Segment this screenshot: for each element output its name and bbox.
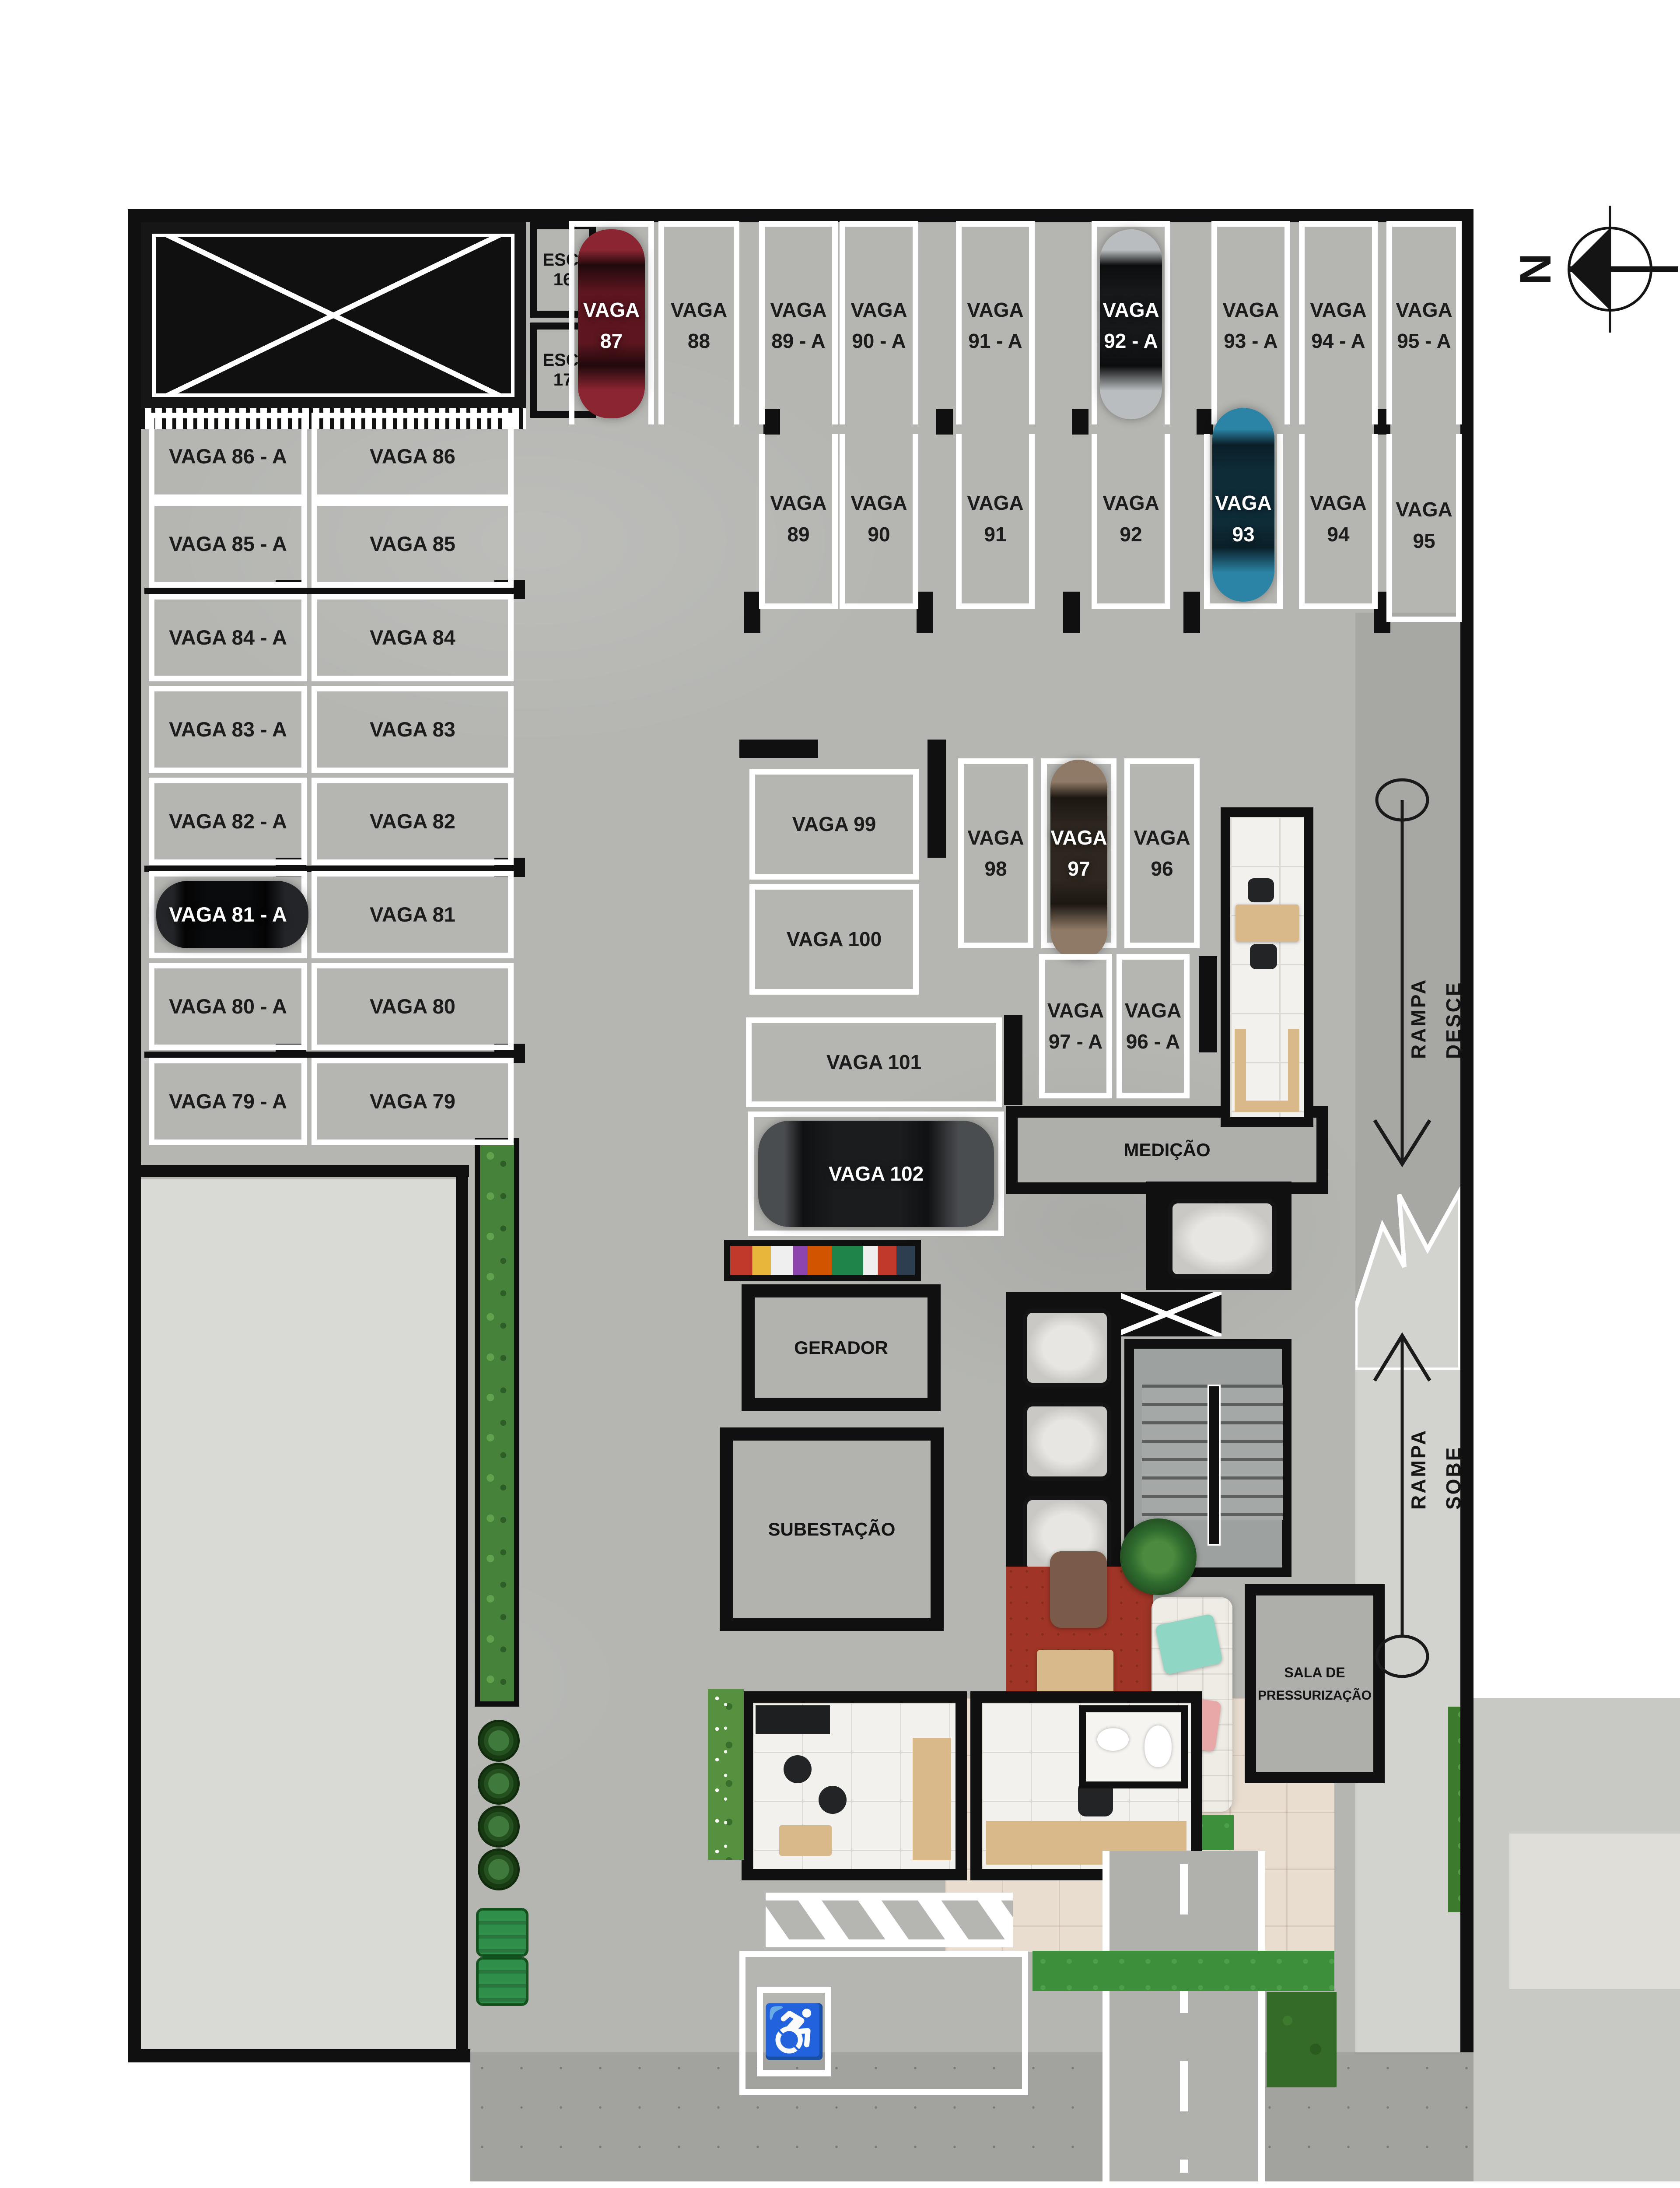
spot-vaga-83: VAGA 83 — [311, 686, 514, 773]
spot-vaga-87: VAGA87 — [569, 221, 654, 424]
spot-vaga-80a: VAGA 80 - A — [149, 963, 307, 1050]
spot-vaga-101: VAGA 101 — [746, 1017, 1002, 1107]
flower-hedge-vertical — [708, 1689, 744, 1860]
medicao-label: MEDIÇÃO — [1123, 1140, 1210, 1161]
chair-icon — [1250, 944, 1277, 969]
outer-yard-left — [141, 1179, 456, 2050]
sink-icon — [1097, 1728, 1129, 1751]
pillar — [936, 409, 953, 435]
elevator-shaft-top — [1146, 1182, 1291, 1290]
spot-vaga-89: VAGA89 — [759, 434, 838, 609]
wall-divider — [144, 1052, 518, 1058]
pillar — [739, 740, 818, 758]
reserved-zone-x — [141, 222, 526, 408]
spot-vaga-100: VAGA 100 — [749, 884, 919, 995]
pillar — [744, 592, 760, 633]
pressurizacao-label: SALA DE — [1284, 1661, 1345, 1684]
spot-vaga-97: VAGA97 — [1041, 758, 1116, 948]
bathroom — [1079, 1705, 1188, 1788]
spot-vaga-91: VAGA91 — [956, 434, 1035, 609]
toilet-icon — [1144, 1725, 1172, 1767]
pillar — [1199, 956, 1217, 1052]
wall-bottom-left — [128, 2049, 470, 2062]
wall-leftblock-bottom — [141, 1165, 469, 1177]
plant-icon — [1120, 1518, 1197, 1595]
spot-vaga-91a: VAGA91 - A — [956, 221, 1035, 424]
cistern-icon — [478, 1720, 520, 1762]
cistern-icon — [478, 1848, 520, 1890]
pillar — [1197, 409, 1213, 435]
accessible-icon: ♿ — [762, 2002, 826, 2062]
elevator-bank-left — [1006, 1292, 1121, 1577]
spot-vaga-88: VAGA88 — [658, 221, 739, 424]
storage-shelf-icon — [724, 1240, 921, 1281]
pillar — [927, 740, 946, 858]
room-pressurizacao: SALA DE PRESSURIZAÇÃO — [1245, 1584, 1385, 1783]
room-office — [742, 1691, 967, 1880]
armchair-icon — [1050, 1551, 1107, 1628]
cistern-icon — [478, 1806, 520, 1848]
room-subestacao: SUBESTAÇÃO — [720, 1427, 944, 1631]
spot-vaga-86a: VAGA 86 - A — [149, 413, 307, 500]
grass-band — [1032, 1951, 1334, 1991]
pillar — [1183, 592, 1200, 633]
lane-divider-dashed — [1180, 1864, 1188, 2173]
driveway — [1102, 1851, 1265, 2181]
ramp-down-label: RAMPA DESCE — [1407, 901, 1465, 1059]
spot-vaga-99: VAGA 99 — [749, 769, 919, 880]
spot-vaga-86: VAGA 86 — [311, 413, 514, 500]
room-gerador: GERADOR — [742, 1284, 941, 1411]
spot-vaga-95a: VAGA95 - A — [1386, 221, 1462, 424]
spot-vaga-83a: VAGA 83 - A — [149, 686, 307, 773]
stair-divider — [1207, 1385, 1221, 1546]
north-letter: N — [1511, 253, 1560, 285]
wall-right — [1460, 209, 1473, 2052]
pillar — [1004, 1015, 1022, 1105]
spot-vaga-92: VAGA92 — [1092, 434, 1170, 609]
spot-vaga-89a: VAGA89 - A — [759, 221, 838, 424]
side-table-icon — [779, 1825, 832, 1856]
bush-icon — [1267, 1992, 1337, 2087]
wall-top — [128, 209, 1473, 222]
spot-vaga-84: VAGA 84 — [311, 594, 514, 681]
spot-vaga-90: VAGA90 — [840, 434, 918, 609]
cistern-icon — [478, 1763, 520, 1805]
spot-vaga-94: VAGA94 — [1299, 434, 1378, 609]
chair-icon — [1248, 878, 1274, 902]
spot-vaga-81: VAGA 81 — [311, 871, 514, 958]
spot-vaga-93a: VAGA93 - A — [1211, 221, 1290, 424]
elevator-cabin-icon — [1168, 1199, 1277, 1279]
spot-vaga-93: VAGA93 — [1204, 434, 1283, 609]
spot-vaga-98: VAGA98 — [958, 758, 1033, 948]
dumpster-icon — [476, 1957, 528, 2006]
pillar — [1063, 592, 1080, 633]
hedge-strip-left — [475, 1138, 519, 1707]
spot-vaga-97a: VAGA97 - A — [1039, 954, 1112, 1098]
spot-vaga-80: VAGA 80 — [311, 963, 514, 1050]
spot-vaga-84a: VAGA 84 - A — [149, 594, 307, 681]
pillar — [1072, 409, 1088, 435]
spot-vaga-95: VAGA95 — [1386, 434, 1462, 622]
north-compass-icon: N — [1479, 188, 1680, 354]
spot-vaga-79: VAGA 79 — [311, 1058, 514, 1145]
elevator-cabin-icon — [1023, 1402, 1111, 1481]
spot-vaga-85a: VAGA 85 - A — [149, 500, 307, 588]
chair-icon — [784, 1755, 812, 1783]
pillar — [917, 592, 933, 633]
spot-vaga-79a: VAGA 79 - A — [149, 1058, 307, 1145]
crosswalk-hatch — [766, 1893, 1013, 1947]
stair-flight — [1217, 1385, 1283, 1520]
spot-vaga-96a: VAGA96 - A — [1116, 954, 1190, 1098]
subestacao-label: SUBESTAÇÃO — [768, 1519, 896, 1540]
spot-vaga-92a: VAGA92 - A — [1092, 221, 1170, 424]
wall-inner-left — [456, 1165, 468, 2062]
spot-vaga-82a: VAGA 82 - A — [149, 778, 307, 865]
chair-icon — [819, 1786, 847, 1814]
corner-sidewalk-beige — [1509, 1834, 1680, 1989]
dumpster-icon — [476, 1908, 528, 1957]
tv-icon — [756, 1705, 830, 1734]
wall-divider — [144, 588, 518, 594]
desk-icon — [1235, 905, 1299, 942]
elevator-cabin-icon — [1023, 1308, 1111, 1387]
desk-icon — [913, 1738, 951, 1860]
stair-flight — [1142, 1385, 1207, 1520]
room-concierge — [1221, 807, 1313, 1127]
spot-vaga-102: VAGA 102 — [748, 1112, 1004, 1236]
spot-vaga-82: VAGA 82 — [311, 778, 514, 865]
counter-icon — [1235, 1029, 1299, 1112]
spot-vaga-81a: VAGA 81 - A — [149, 871, 307, 958]
spot-vaga-94a: VAGA94 - A — [1299, 221, 1378, 424]
wall-left — [128, 209, 141, 2062]
spot-vaga-90a: VAGA90 - A — [840, 221, 918, 424]
spot-vaga-96: VAGA96 — [1124, 758, 1200, 948]
accessible-symbol-box: ♿ — [757, 1987, 831, 2076]
gerador-label: GERADOR — [794, 1337, 888, 1358]
shaft-x-icon — [1111, 1292, 1221, 1336]
ramp-up-label: RAMPA SOBE — [1407, 1352, 1465, 1510]
spot-vaga-85: VAGA 85 — [311, 500, 514, 588]
